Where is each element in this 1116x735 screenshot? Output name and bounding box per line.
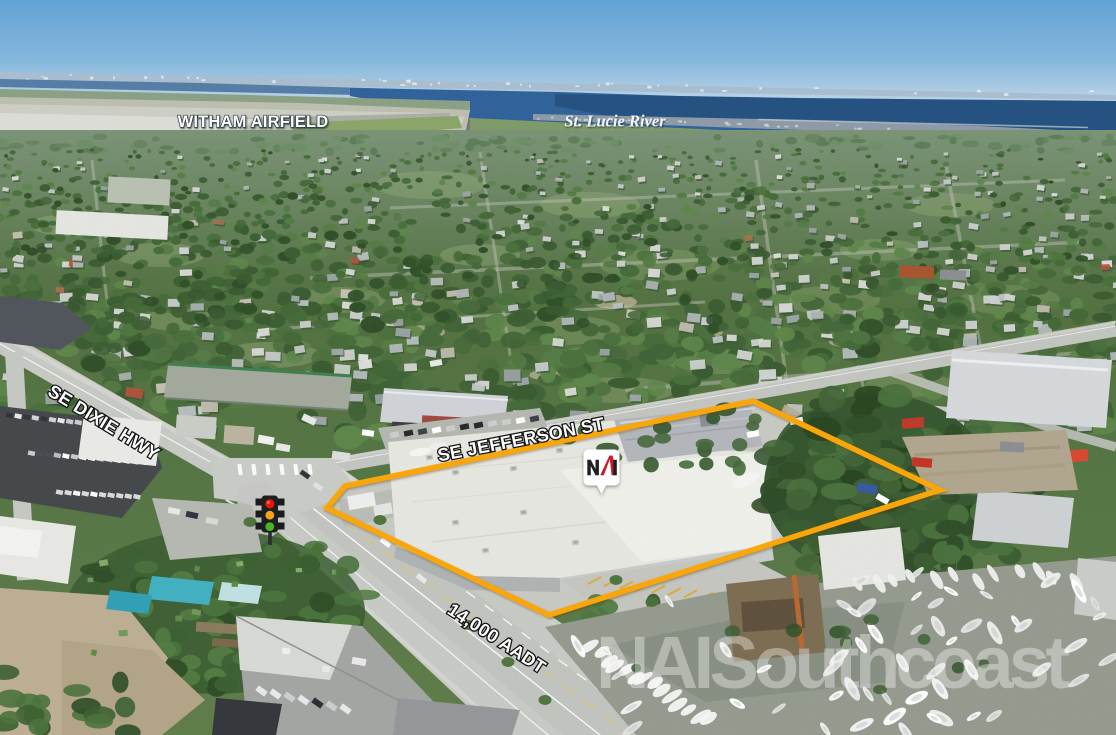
- svg-text:NAISouthcoast: NAISouthcoast: [596, 621, 1069, 704]
- svg-text:St. Lucie River: St. Lucie River: [564, 112, 666, 131]
- svg-text:WITHAM AIRFIELD: WITHAM AIRFIELD: [178, 113, 329, 131]
